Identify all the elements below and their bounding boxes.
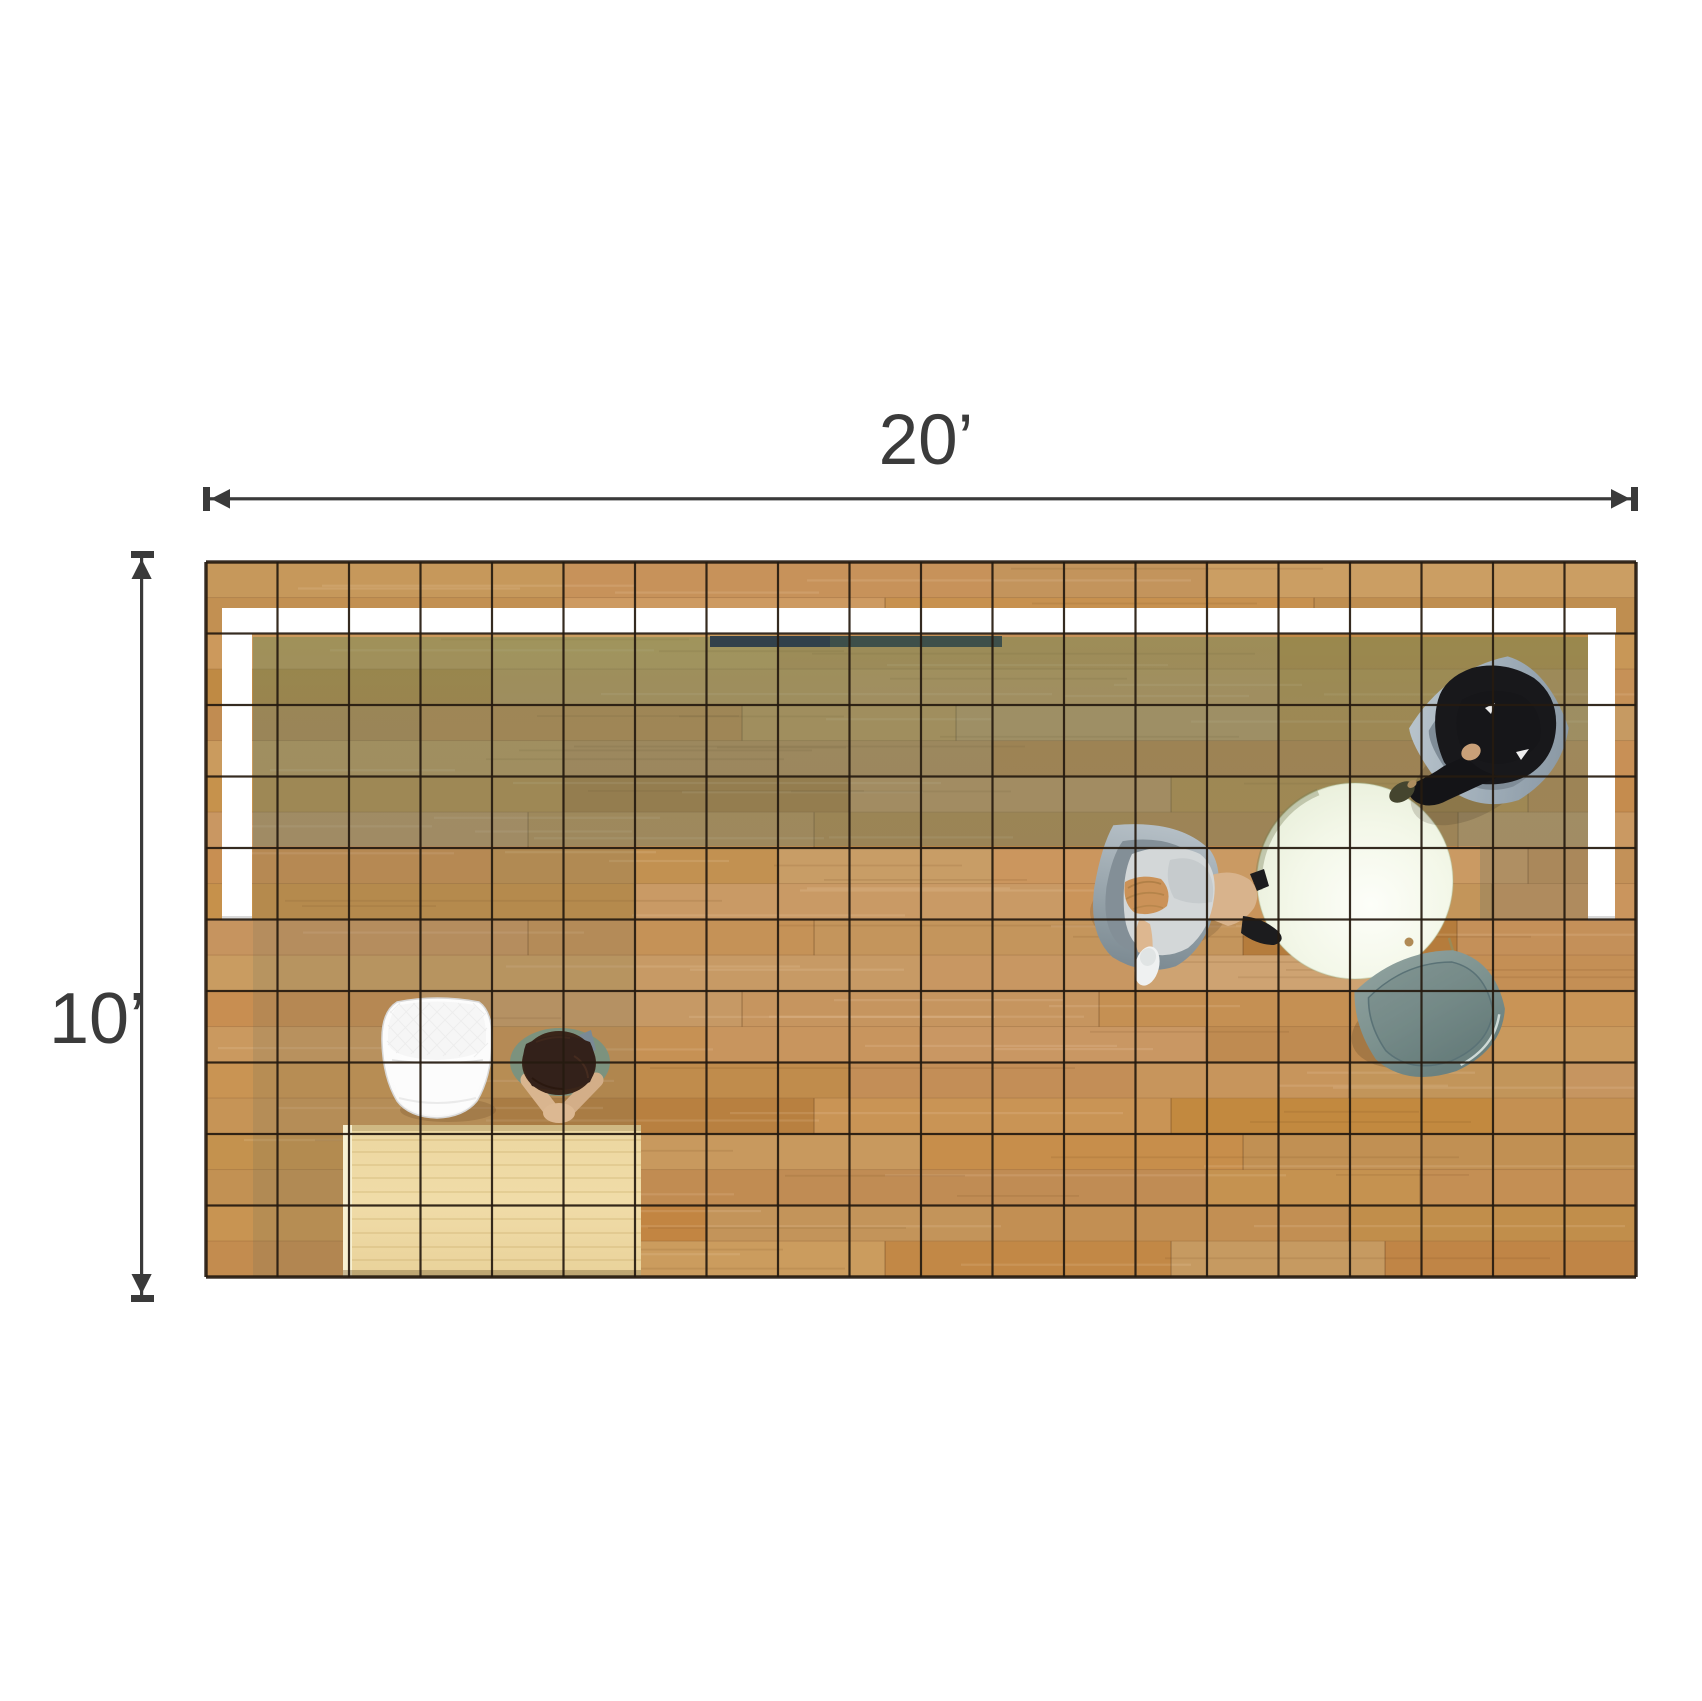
svg-text:20’: 20’ — [879, 401, 974, 480]
svg-text:10’: 10’ — [49, 979, 145, 1059]
